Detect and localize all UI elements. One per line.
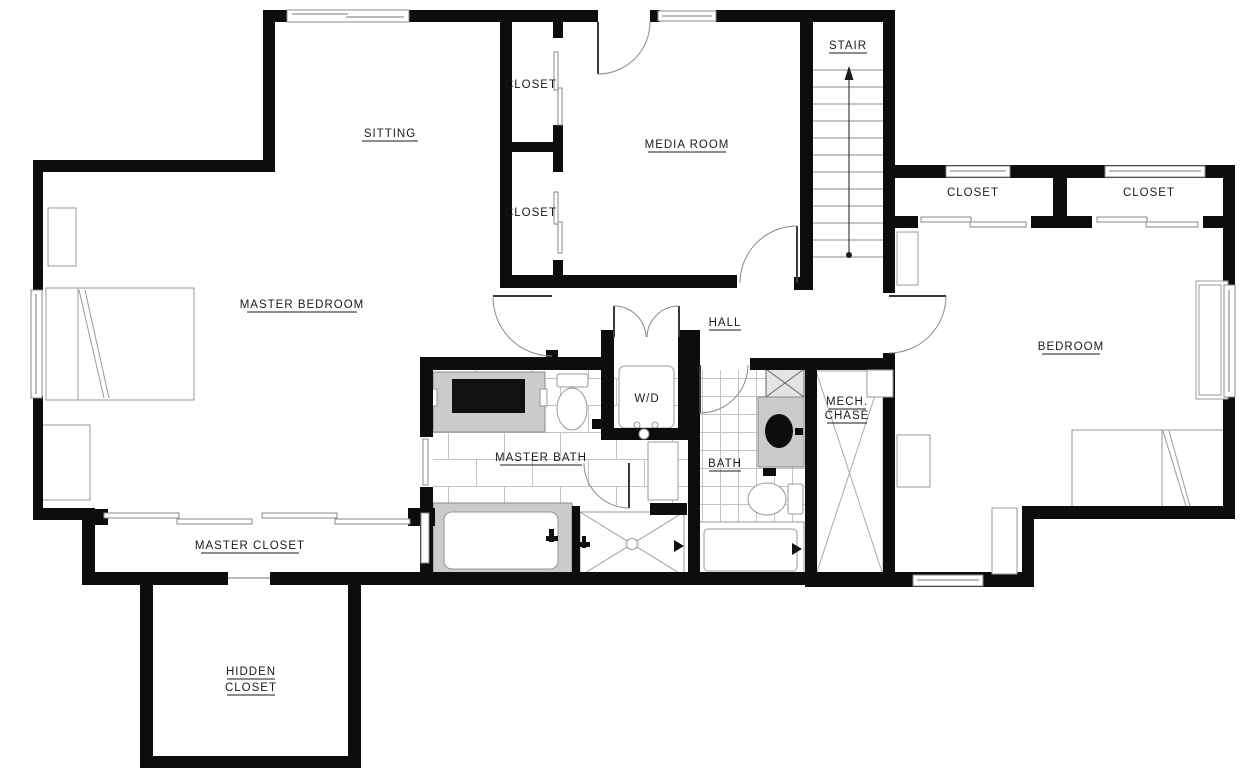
bath-linen-cabinet [766,369,804,397]
mech-chase-label-line2: CHASE [825,410,870,422]
hall-label: HALL [709,317,742,329]
master-shower [576,506,688,578]
bedroom-label: BEDROOM [1038,341,1104,353]
bath-tub [697,522,804,578]
laundry-label: W/D [634,393,659,405]
bedroom-desk [897,232,918,285]
master-nightstand-upper [48,208,76,266]
stair-treads [813,70,883,257]
bedroom-door [889,296,946,353]
master-nightstand-lower [42,425,90,500]
east-closet-left-label: CLOSET [947,187,999,199]
bedroom-nightstand [897,435,930,487]
mech-chase-duct [867,370,893,397]
master-bath-window [421,513,429,563]
sitting-window [287,10,409,22]
east-closet-left-window [946,166,1010,177]
bedroom-bed [1072,430,1226,508]
master-bath-pocket-opening [420,437,433,487]
media-room-label: MEDIA ROOM [645,139,730,151]
laundry-double-doors [614,306,679,337]
master-closet-label: MASTER CLOSET [195,540,305,552]
east-closet-right-label: CLOSET [1123,187,1175,199]
media-room-window [658,11,716,21]
master-closet-sliding-doors [104,513,410,524]
closet-upper-label: CLOSET [505,79,557,91]
bedroom-wardrobe [1196,281,1228,399]
master-bath-toilet [557,374,588,430]
sitting-label: SITTING [364,128,416,140]
media-room-entry-door [598,22,650,74]
master-bath-label: MASTER BATH [495,452,587,464]
stair-label: STAIR [829,40,867,52]
closet-lower-label: CLOSET [505,207,557,219]
mech-chase-label-line1: MECH. [826,396,868,408]
master-bath-vanity [430,372,547,432]
master-bedroom-door [493,296,552,356]
master-bedroom-window [31,290,42,398]
floor-plan: SITTING CLOSET CLOSET MEDIA ROOM STAIR C… [0,0,1260,784]
east-closet-right-window [1105,166,1205,177]
master-bath-tub [433,503,572,576]
master-bath-linen [648,442,678,500]
bath-label: BATH [708,458,742,470]
bedroom-bookcase [992,508,1017,574]
hidden-closet-label-line2: CLOSET [225,682,277,694]
laundry-plumbing-access [639,429,649,439]
bedroom-east-window [1224,285,1235,397]
bath-vanity [758,397,804,476]
floor-plan-drawing: SITTING CLOSET CLOSET MEDIA ROOM STAIR C… [0,0,1260,784]
bath-toilet [748,483,803,515]
media-room-hall-door [740,226,797,283]
east-closet-left-sliding-doors [921,217,1026,227]
hidden-closet-label-line1: HIDDEN [226,666,276,678]
hidden-closet-concealed-door [228,572,270,585]
alcove-window [913,575,983,586]
master-bed [46,288,194,400]
master-bedroom-label: MASTER BEDROOM [240,299,365,311]
closet-lower-sliding-door [554,192,562,253]
east-closet-right-sliding-doors [1097,217,1198,227]
stair-direction-arrow [845,66,854,258]
